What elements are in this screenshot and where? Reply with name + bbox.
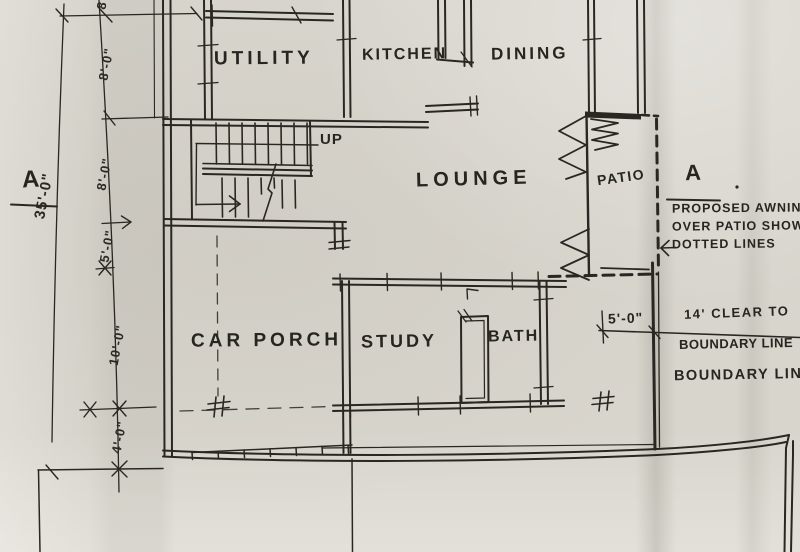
- room-label-utility: UTILITY: [214, 49, 314, 69]
- floorplan-linework: [0, 0, 800, 552]
- stairs-up-label: UP: [320, 132, 343, 147]
- dimension-chain: [46, 0, 202, 492]
- section-marker-a-right: A: [685, 162, 702, 185]
- room-label-car-porch: CAR PORCH: [191, 330, 342, 350]
- site-lines: [38, 459, 353, 552]
- room-label-kitchen: KITCHEN: [362, 46, 447, 63]
- awning-note-line2: OVER PATIO SHOWN: [672, 219, 800, 233]
- room-label-dining: DINING: [491, 44, 569, 62]
- clearance-note-line1: 14' CLEAR TO: [684, 304, 790, 321]
- floor-plan-sheet: UTILITY KITCHEN DINING LOUNGE PATIO CAR …: [0, 0, 800, 552]
- room-label-lounge: LOUNGE: [416, 167, 532, 190]
- room-label-study: STUDY: [361, 331, 437, 350]
- setback-dimension: 5'-0": [608, 310, 644, 325]
- rear-right-wall: [653, 263, 660, 449]
- awning-note-line3: DOTTED LINES: [672, 238, 776, 251]
- clearance-note-line2: BOUNDARY LINE: [679, 336, 793, 351]
- boundary-line-label: BOUNDARY LINE: [674, 367, 800, 384]
- room-label-bath: BATH: [488, 329, 540, 346]
- boundary-linework: [163, 435, 793, 552]
- stairs-linework: [191, 120, 318, 221]
- patio-walls: [585, 112, 649, 277]
- awning-dashed-outline: [549, 115, 659, 277]
- awning-note-line1: PROPOSED AWNING: [672, 201, 800, 215]
- study-bath-walls: [333, 272, 566, 453]
- car-porch-centerlines: [180, 236, 332, 411]
